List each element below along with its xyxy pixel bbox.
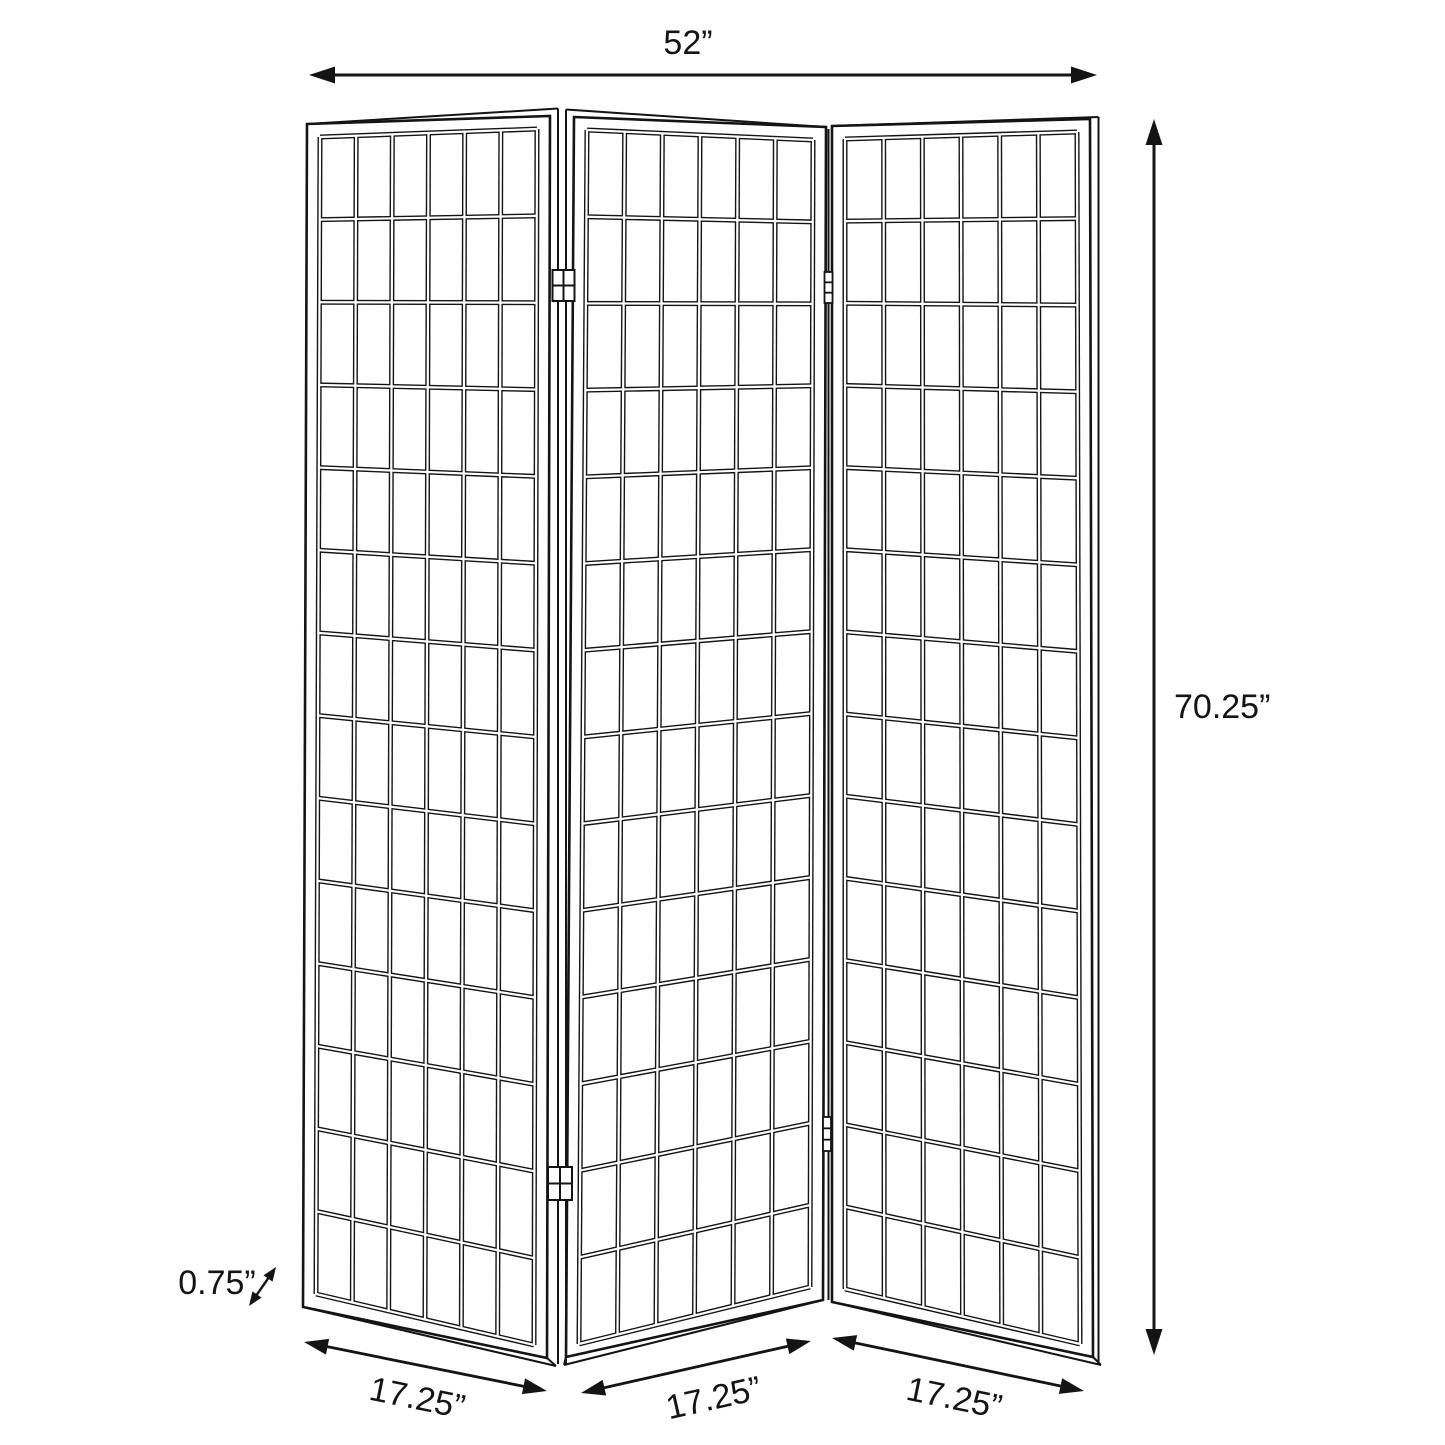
frame-thickness-label: 0.75”	[178, 1264, 256, 1302]
panel-width-right-label: 17.25”	[903, 1370, 1005, 1426]
screen-panels-group	[303, 116, 1093, 1358]
diagram-canvas: 52” 70.25” 0.75” 17.25” 17.25” 17.25”	[0, 0, 1445, 1445]
panel-thickness-edges-group	[303, 109, 1101, 1367]
overall-height-label: 70.25”	[1174, 688, 1270, 726]
panel-width-left-label: 17.25”	[366, 1370, 468, 1426]
room-divider-dimension-diagram: 52” 70.25” 0.75” 17.25” 17.25” 17.25”	[0, 0, 1445, 1445]
panel-width-middle-label: 17.25”	[662, 1369, 764, 1427]
overall-width-label: 52”	[663, 24, 712, 62]
